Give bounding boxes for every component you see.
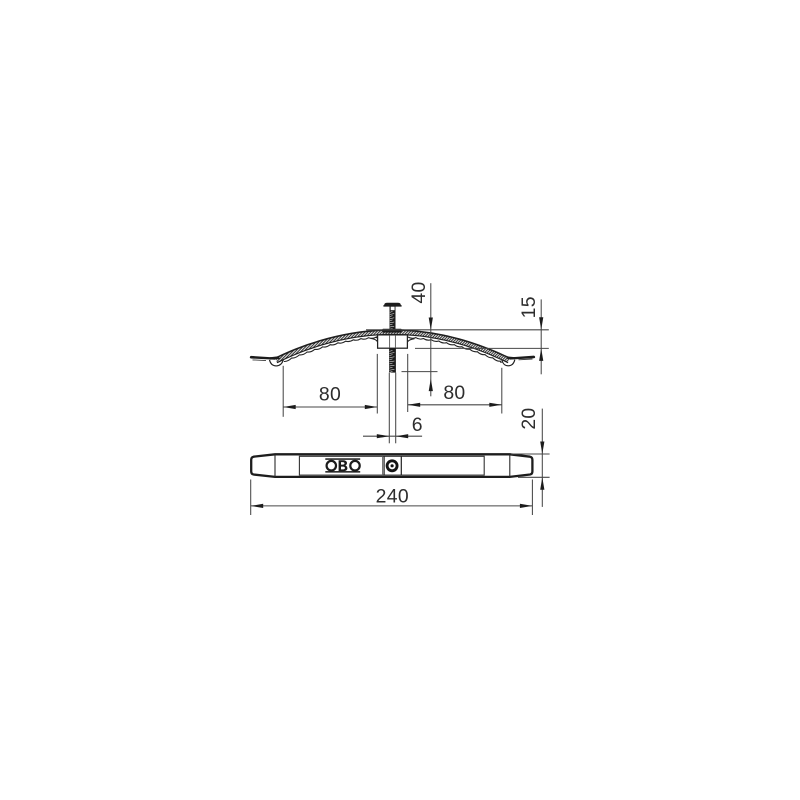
svg-text:40: 40: [408, 281, 430, 303]
svg-text:15: 15: [518, 296, 540, 318]
svg-text:80: 80: [319, 384, 341, 406]
svg-text:240: 240: [376, 486, 409, 508]
svg-text:80: 80: [443, 382, 465, 404]
svg-text:20: 20: [518, 408, 540, 430]
svg-text:6: 6: [412, 414, 423, 436]
